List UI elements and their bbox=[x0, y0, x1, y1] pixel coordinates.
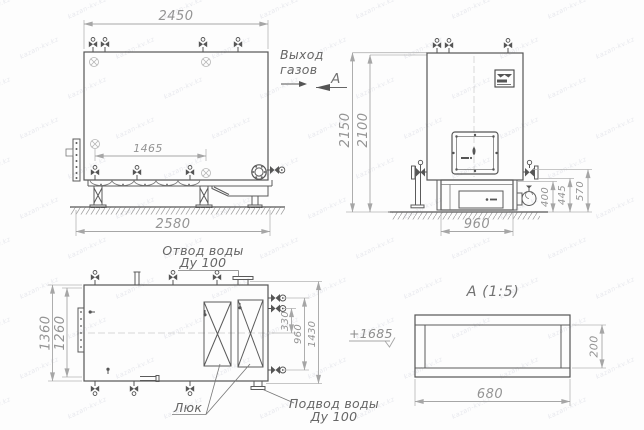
door-latch-icon bbox=[472, 147, 475, 156]
valve-icon bbox=[91, 381, 99, 396]
section-view: А (1:5) 680 200 bbox=[415, 284, 606, 406]
valve-icon bbox=[89, 38, 97, 53]
dim-text: 1260 bbox=[53, 315, 68, 350]
dim-text: 2580 bbox=[155, 217, 190, 232]
valve-icon bbox=[101, 38, 109, 53]
hatch-1 bbox=[204, 302, 231, 366]
side-view: 2450 1465 2580 Выход газов bbox=[66, 9, 347, 236]
label-text: Люк bbox=[173, 400, 203, 415]
boiler-technical-drawing: 2450 1465 2580 Выход газов bbox=[0, 0, 644, 430]
dim-1465: 1465 bbox=[95, 142, 206, 161]
dim-text: 960 bbox=[464, 217, 490, 232]
dim-text: 2100 bbox=[356, 112, 371, 147]
dim-text: 1360 bbox=[39, 315, 54, 350]
side-valve-left bbox=[412, 160, 428, 179]
dim-2100: 2100 bbox=[356, 55, 371, 212]
valve-icon bbox=[268, 366, 286, 374]
valve-icon bbox=[199, 38, 207, 53]
hatch-2 bbox=[238, 300, 263, 367]
dim-680: 680 bbox=[415, 379, 570, 406]
valve-icon bbox=[91, 166, 99, 181]
water-inlet-label: Подвод воды Ду 100 bbox=[263, 390, 379, 425]
dim-text: 680 bbox=[477, 387, 503, 402]
section-title: А (1:5) bbox=[466, 284, 520, 300]
front-view: 2150 2100 400 445 570 bbox=[338, 39, 592, 237]
valve-icon bbox=[186, 381, 194, 396]
burner-flange-icon bbox=[252, 165, 266, 179]
dim-text: 330 bbox=[280, 311, 291, 331]
nameplate-icon bbox=[495, 70, 514, 87]
valve-icon bbox=[268, 294, 286, 302]
furnace-base bbox=[437, 180, 517, 210]
dim-text: 960 bbox=[293, 324, 304, 344]
side-pipe bbox=[140, 376, 159, 382]
valve-icon bbox=[445, 39, 453, 54]
valve-icon bbox=[91, 271, 99, 286]
dim-text: 1465 bbox=[133, 142, 163, 155]
section-cut-mark: А bbox=[316, 71, 347, 91]
gas-outlet-label: Выход газов bbox=[280, 47, 324, 87]
dim-400: 400 bbox=[518, 182, 557, 213]
valve-icon bbox=[433, 39, 441, 54]
fitting-icon bbox=[89, 310, 95, 313]
level-text: +1685 bbox=[349, 326, 393, 341]
valve-icon bbox=[267, 166, 285, 174]
valve-icon bbox=[169, 271, 177, 286]
elevation-mark: +1685 bbox=[349, 326, 395, 347]
valve-icon bbox=[234, 38, 242, 53]
water-inlet-flange bbox=[251, 381, 265, 390]
valve-icon bbox=[213, 271, 221, 286]
label-text: Ду 100 bbox=[310, 409, 358, 424]
dim-text: 570 bbox=[575, 181, 586, 201]
dim-text: 445 bbox=[557, 185, 568, 205]
fan-icon bbox=[517, 186, 536, 206]
dim-text: 200 bbox=[588, 335, 601, 357]
dim-text: 400 bbox=[540, 187, 551, 207]
drawing-canvas: kazan-kv.kzkazan-kv.kzkazan-kv.kzkazan-k… bbox=[0, 0, 644, 430]
water-outlet-flange bbox=[233, 277, 253, 286]
label-text: газов bbox=[280, 62, 317, 77]
section-letter: А bbox=[330, 71, 341, 87]
hatch-label: Люк bbox=[172, 364, 250, 415]
position-mark-icon bbox=[90, 58, 99, 67]
valve-icon bbox=[504, 39, 512, 54]
dim-text: 1430 bbox=[307, 321, 318, 348]
valve-icon bbox=[133, 166, 141, 181]
position-mark-icon bbox=[91, 140, 100, 149]
manhole-door bbox=[452, 132, 498, 174]
position-mark-icon bbox=[202, 58, 211, 67]
valve-icon bbox=[130, 381, 138, 396]
label-text: Ду 100 bbox=[179, 255, 227, 270]
arrow-right-icon bbox=[299, 81, 307, 87]
dim-text: 2150 bbox=[338, 112, 353, 147]
plan-view: 1360 1260 330 960 bbox=[39, 243, 396, 424]
pipe-stub bbox=[134, 272, 141, 285]
dim-200: 200 bbox=[572, 325, 606, 368]
arrow-left-icon bbox=[316, 84, 330, 91]
label-text: Выход bbox=[280, 47, 324, 62]
position-mark-icon bbox=[202, 169, 211, 178]
valve-icon bbox=[186, 166, 194, 181]
fitting-icon bbox=[106, 368, 109, 374]
dim-text: 2450 bbox=[158, 9, 193, 24]
